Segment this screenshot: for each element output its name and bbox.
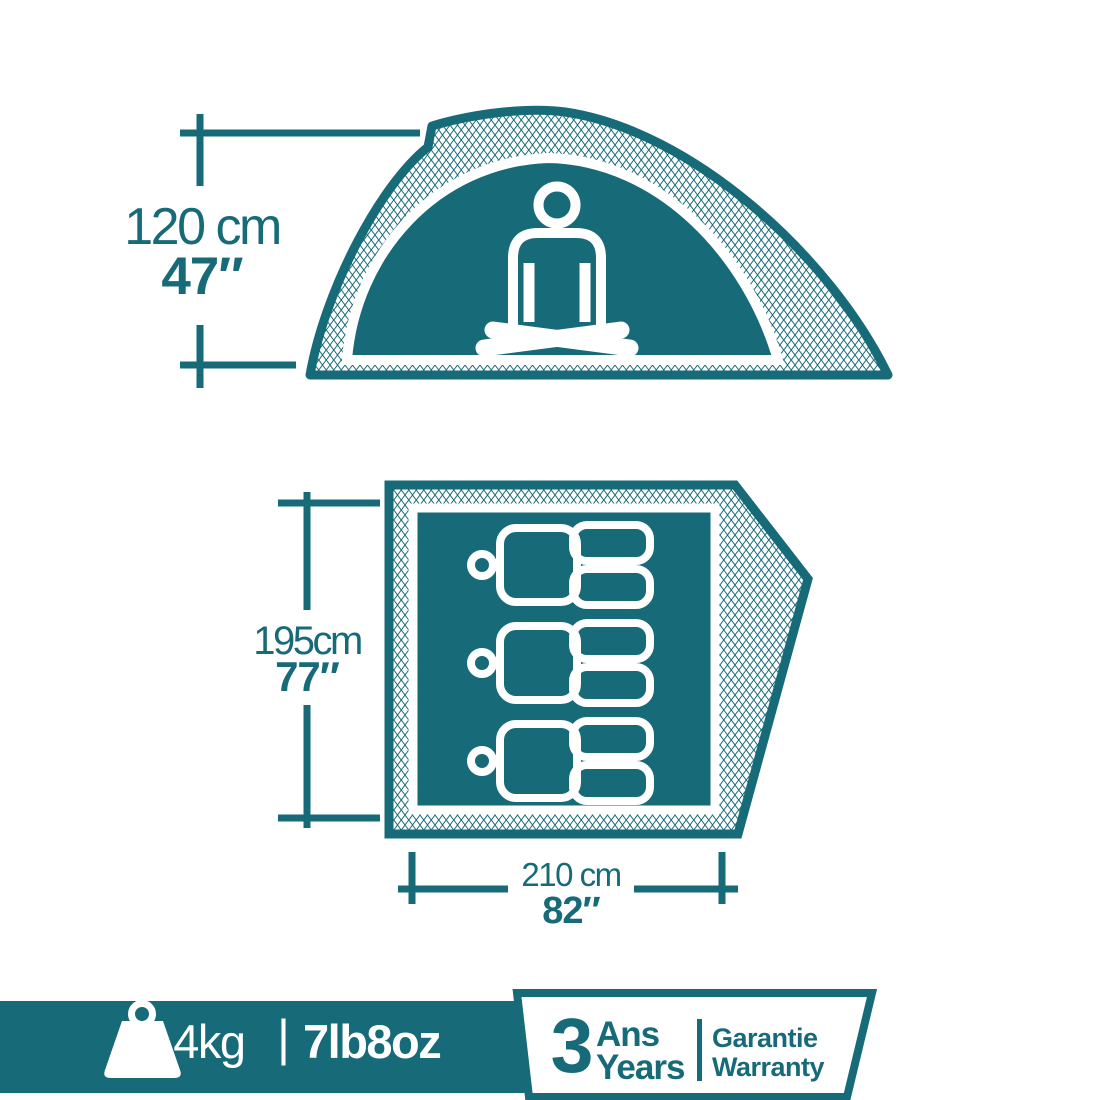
warranty-years-count: 3	[548, 1008, 594, 1085]
tent-side-view	[310, 110, 888, 375]
warranty-label-fr: Garantie	[712, 1024, 824, 1053]
floor-inner-room	[413, 508, 715, 810]
weight-metric-label: 3,4kg	[137, 1018, 244, 1065]
warranty-years-label-en: Years	[596, 1052, 684, 1085]
warranty-years-labels: Ans Years	[596, 1019, 684, 1084]
floor-width-imperial-label: 82″	[471, 892, 671, 930]
warranty-years-label-fr: Ans	[596, 1019, 684, 1052]
tent-floor-plan	[389, 485, 808, 834]
tent-height-metric-label: 120 cm	[102, 201, 302, 253]
warranty-guarantee-labels: Garantie Warranty	[712, 1024, 824, 1082]
warranty-label-en: Warranty	[712, 1053, 824, 1082]
weight-imperial-label: 7lb8oz	[303, 1018, 440, 1065]
floor-depth-imperial-label: 77″	[232, 656, 382, 698]
tent-height-imperial-label: 47″	[102, 250, 302, 303]
tent-spec-infographic: 120 cm 47″ 195cm 77″ 210 cm 82″ 3,4kg | …	[0, 0, 1100, 1100]
floor-width-metric-label: 210 cm	[471, 858, 671, 891]
warranty-divider	[697, 1019, 702, 1081]
diagram-canvas	[0, 0, 1100, 1100]
weight-separator: |	[277, 1013, 290, 1063]
